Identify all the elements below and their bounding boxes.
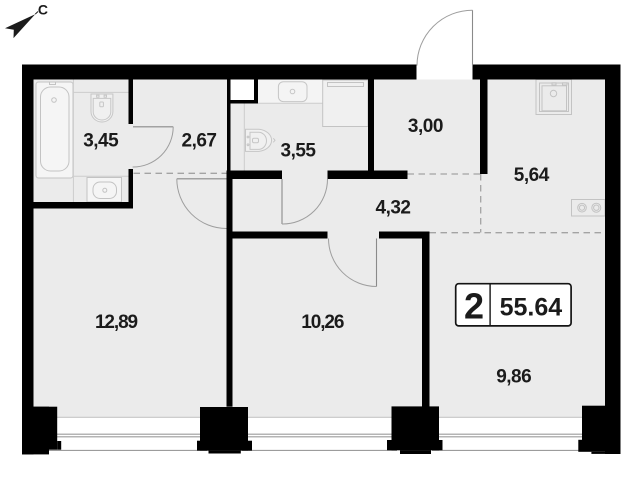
svg-text:3,00: 3,00: [408, 116, 443, 137]
svg-text:9,86: 9,86: [496, 367, 531, 388]
svg-text:5,64: 5,64: [514, 165, 550, 186]
svg-text:3,55: 3,55: [281, 141, 317, 162]
svg-text:10,26: 10,26: [301, 312, 344, 333]
svg-text:С: С: [38, 1, 48, 17]
svg-text:2,67: 2,67: [182, 131, 217, 152]
svg-text:3,45: 3,45: [83, 131, 119, 152]
svg-text:12,89: 12,89: [95, 312, 138, 333]
svg-text:4,32: 4,32: [376, 197, 411, 218]
svg-text:55.64: 55.64: [500, 294, 563, 322]
svg-text:2: 2: [464, 286, 484, 327]
